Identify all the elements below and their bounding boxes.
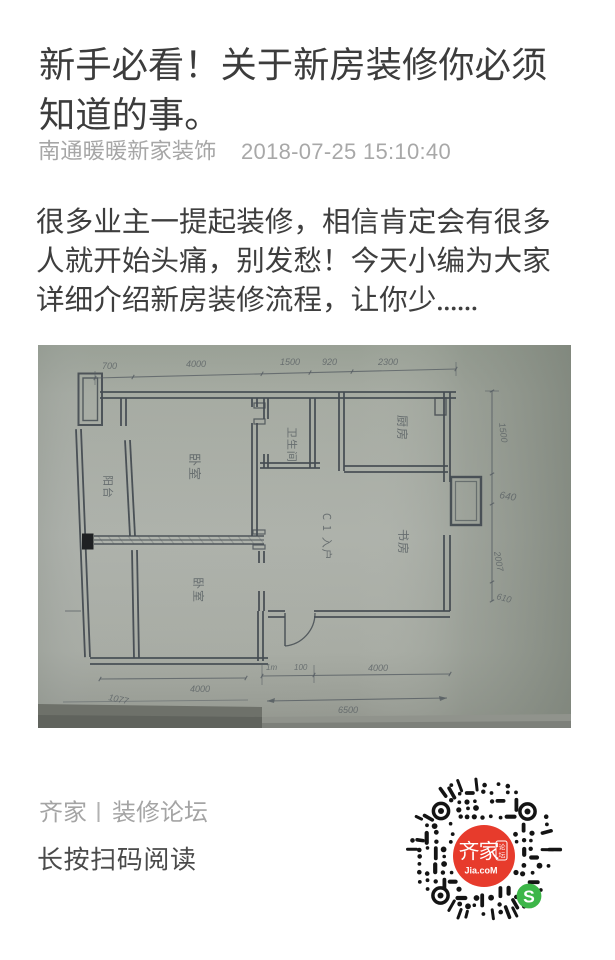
svg-text:4000: 4000: [190, 684, 210, 694]
svg-text:2018-07-25 15:10:40: 2018-07-25 15:10:40: [241, 139, 451, 164]
svg-text:700: 700: [102, 361, 117, 371]
svg-text:1m: 1m: [266, 663, 277, 672]
svg-text:2300: 2300: [377, 357, 398, 367]
svg-text:S: S: [523, 886, 535, 906]
svg-text:4000: 4000: [368, 663, 388, 673]
svg-text:1500: 1500: [280, 357, 300, 367]
svg-text:4000: 4000: [186, 359, 206, 369]
svg-text:100: 100: [294, 663, 308, 672]
svg-text:6500: 6500: [338, 705, 358, 715]
svg-text:Jia.coM: Jia.coM: [464, 866, 497, 876]
svg-text:920: 920: [322, 357, 337, 367]
